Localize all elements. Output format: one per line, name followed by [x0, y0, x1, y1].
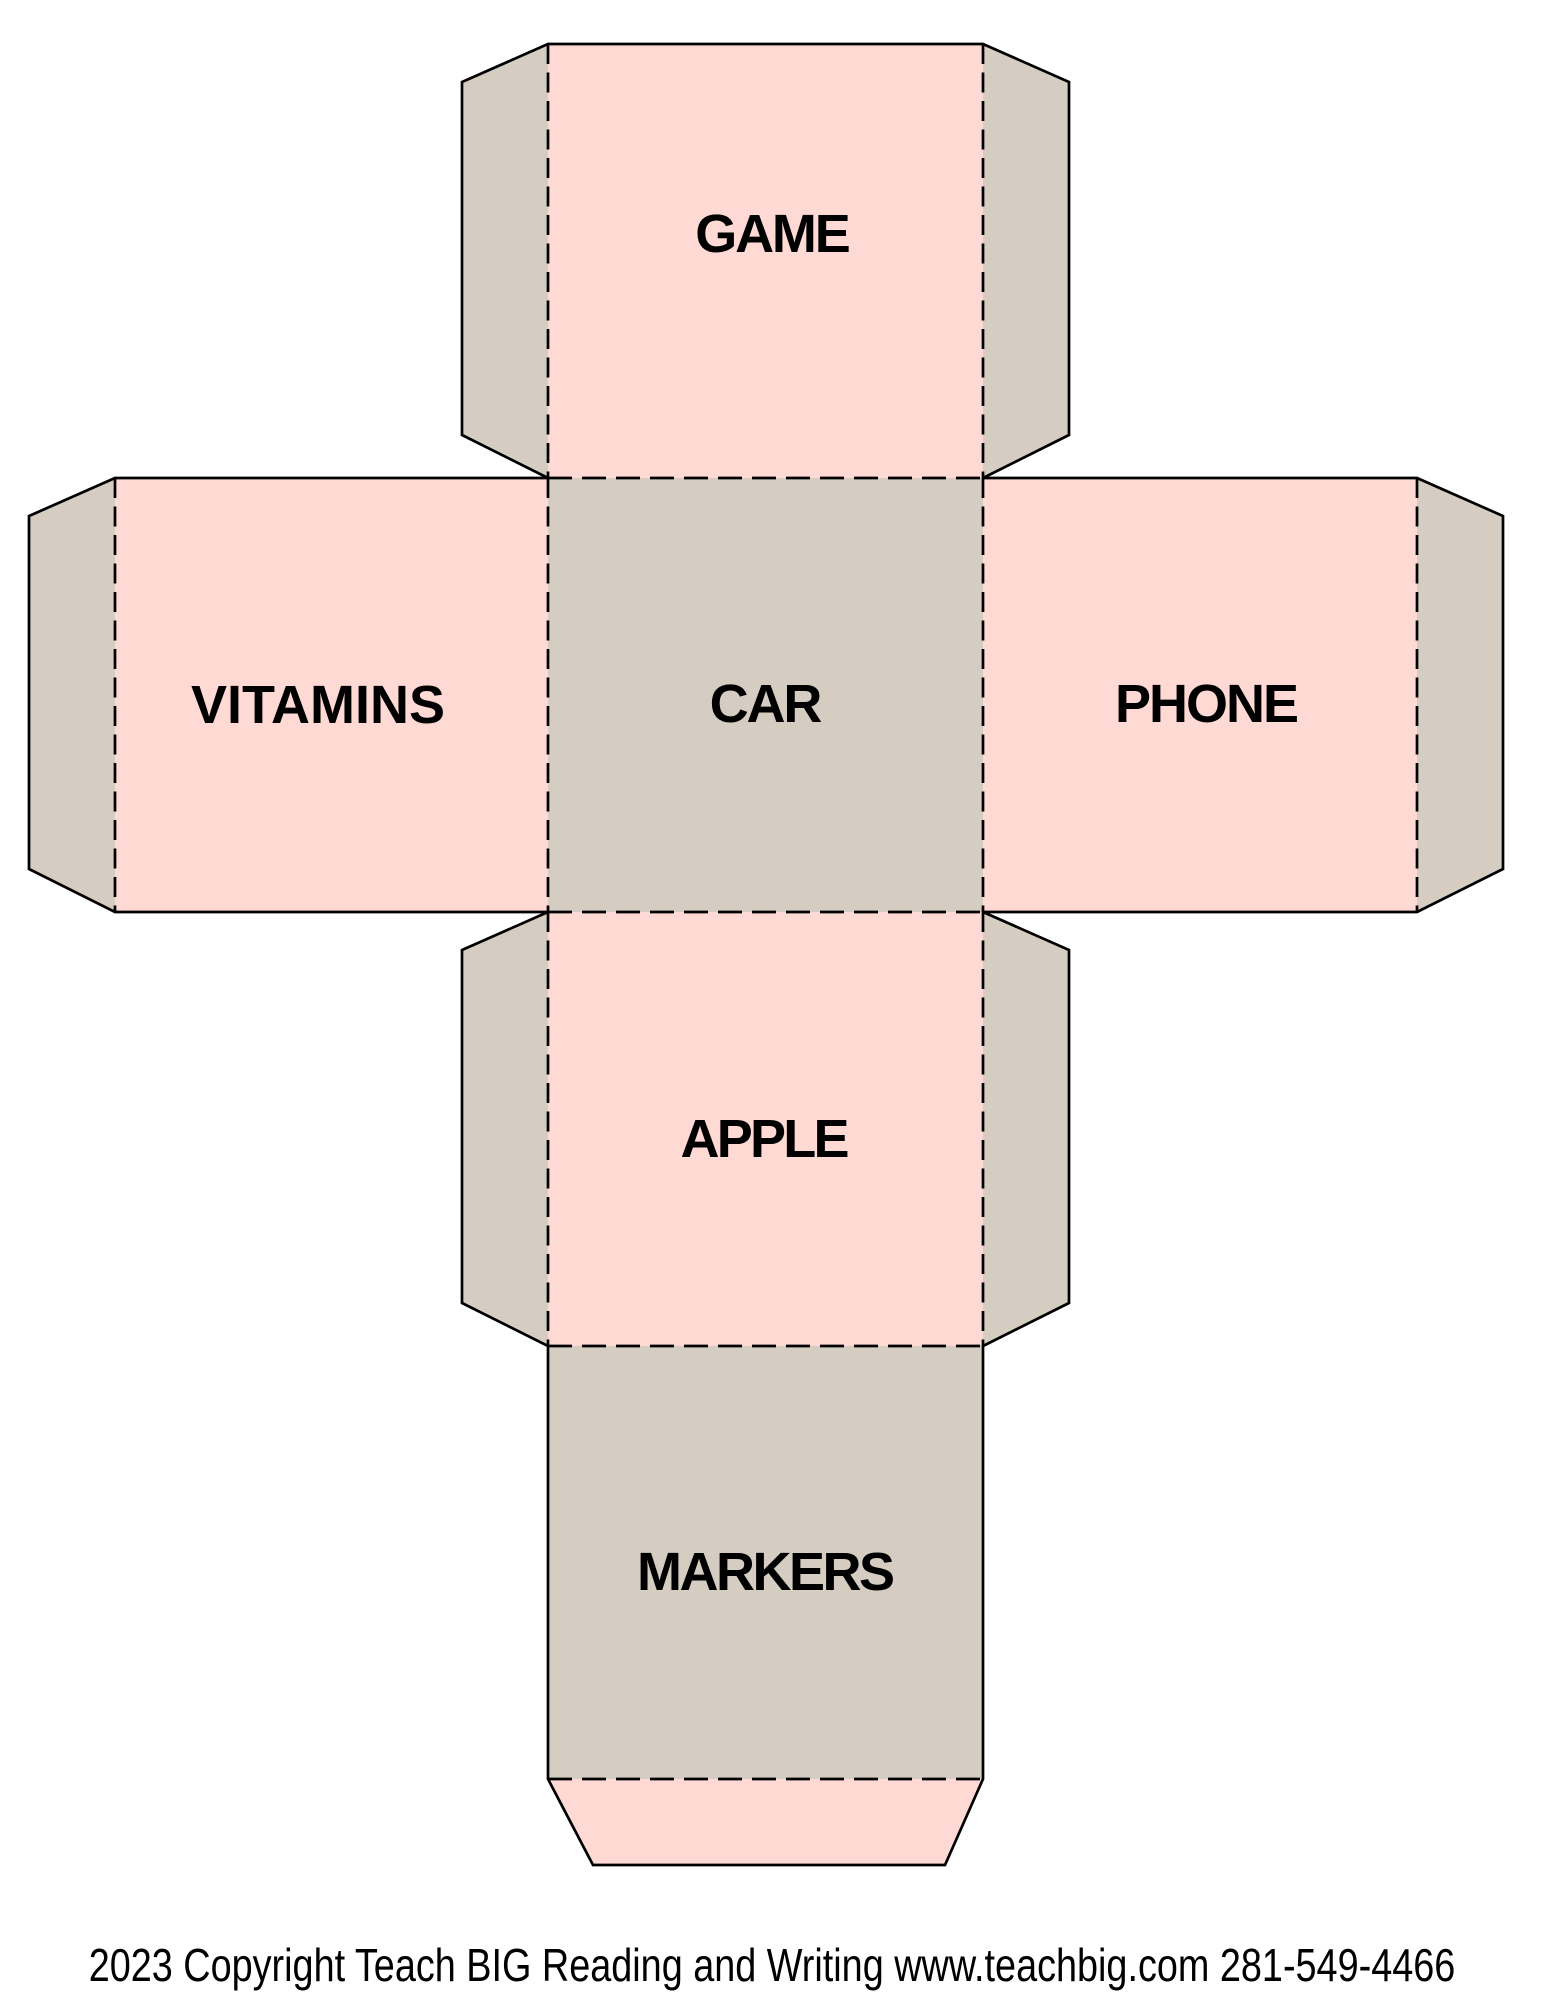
svg-text:CAR: CAR: [710, 674, 823, 734]
svg-text:VITAMINS: VITAMINS: [191, 675, 445, 735]
svg-text:GAME: GAME: [695, 204, 851, 264]
svg-text:APPLE: APPLE: [681, 1109, 850, 1169]
svg-text:PHONE: PHONE: [1115, 674, 1299, 734]
svg-text:MARKERS: MARKERS: [637, 1542, 895, 1602]
svg-text:2023 Copyright Teach BIG Readi: 2023 Copyright Teach BIG Reading and Wri…: [89, 1939, 1456, 1990]
